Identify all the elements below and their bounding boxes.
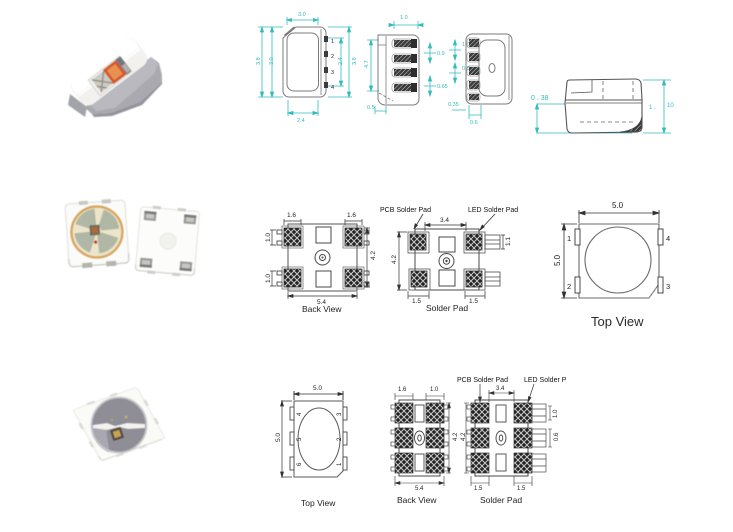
svg-text:0.5: 0.5 <box>367 105 375 111</box>
svg-text:1.6: 1.6 <box>398 387 407 393</box>
svg-text:4.2: 4.2 <box>461 432 467 441</box>
svg-text:1 .: 1 . <box>649 105 656 111</box>
svg-text:0.6: 0.6 <box>470 120 478 126</box>
svg-text:6: 6 <box>297 462 303 466</box>
svg-text:3: 3 <box>337 412 343 416</box>
svg-text:4: 4 <box>297 412 303 416</box>
svg-text:1.0: 1.0 <box>553 409 559 418</box>
svg-text:3: 3 <box>331 70 334 76</box>
svg-text:2: 2 <box>331 54 334 60</box>
svg-text:4.7: 4.7 <box>364 60 370 68</box>
svg-text:0.6: 0.6 <box>554 432 560 441</box>
svg-text:1.0: 1.0 <box>265 233 272 242</box>
svg-text:Back View: Back View <box>397 495 437 505</box>
svg-text:1.0: 1.0 <box>430 387 439 393</box>
svg-text:2.4: 2.4 <box>297 118 305 124</box>
svg-text:5.0: 5.0 <box>313 385 322 392</box>
svg-text:3.8: 3.8 <box>256 57 262 65</box>
svg-text:5.0: 5.0 <box>275 433 282 442</box>
svg-text:5.0: 5.0 <box>553 254 562 266</box>
svg-text:Top View: Top View <box>591 314 644 329</box>
svg-text:4.2: 4.2 <box>370 251 377 260</box>
svg-text:3.4: 3.4 <box>440 217 449 224</box>
svg-text:5.4: 5.4 <box>415 486 424 492</box>
svg-text:1: 1 <box>567 234 571 243</box>
svg-text:0 . 38: 0 . 38 <box>531 95 549 102</box>
svg-text:1.5: 1.5 <box>469 298 478 305</box>
svg-text:0.35: 0.35 <box>448 102 459 108</box>
svg-text:1.5: 1.5 <box>474 486 483 492</box>
svg-text:3.0: 3.0 <box>298 12 306 18</box>
svg-text:LED Solder Pad: LED Solder Pad <box>468 207 518 214</box>
svg-text:PCB Solder Pad: PCB Solder Pad <box>380 207 431 214</box>
svg-text:3.4: 3.4 <box>496 386 505 392</box>
svg-text:PCB Solder Pad: PCB Solder Pad <box>457 377 508 384</box>
svg-text:Back View: Back View <box>302 304 342 314</box>
svg-text:4: 4 <box>666 234 670 243</box>
svg-text:1.0: 1.0 <box>265 274 272 283</box>
svg-text:1.5: 1.5 <box>517 486 526 492</box>
svg-text:Solder Pad: Solder Pad <box>426 303 468 313</box>
svg-text:1: 1 <box>331 39 334 45</box>
svg-text:1.6: 1.6 <box>347 212 356 219</box>
svg-text:1.1: 1.1 <box>505 237 512 246</box>
svg-text:10: 10 <box>667 103 674 109</box>
svg-text:Solder Pad: Solder Pad <box>480 495 522 505</box>
svg-text:2: 2 <box>567 282 571 291</box>
svg-text:1.6: 1.6 <box>287 212 296 219</box>
svg-text:LED Solder P: LED Solder P <box>524 377 567 384</box>
svg-text:2.4: 2.4 <box>338 57 344 65</box>
svg-text:4: 4 <box>331 85 334 91</box>
svg-text:Top View: Top View <box>301 498 336 508</box>
svg-text:1: 1 <box>337 462 343 466</box>
svg-text:5.0: 5.0 <box>612 201 624 210</box>
svg-text:4.2: 4.2 <box>391 255 398 264</box>
svg-text:3.0: 3.0 <box>269 57 275 65</box>
svg-text:3: 3 <box>666 282 670 291</box>
svg-text:1.0: 1.0 <box>400 15 408 21</box>
svg-text:1.5: 1.5 <box>412 298 421 305</box>
